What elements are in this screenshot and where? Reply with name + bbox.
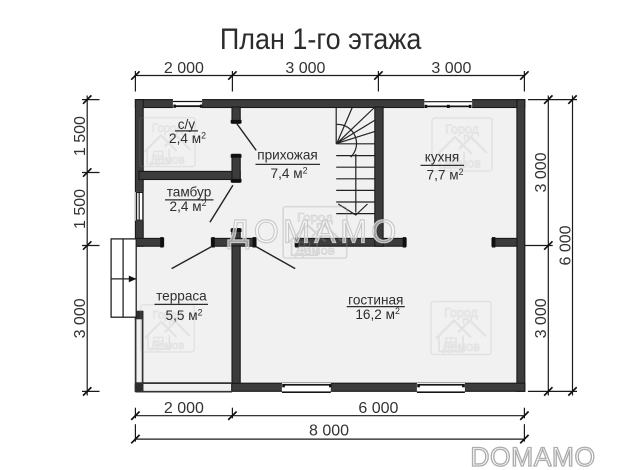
svg-text:3 000: 3 000: [533, 298, 550, 338]
svg-text:тамбур: тамбур: [167, 184, 212, 199]
svg-text:2,4 м2: 2,4 м2: [169, 130, 206, 146]
svg-text:прихожая: прихожая: [257, 148, 318, 163]
svg-text:терраса: терраса: [156, 288, 207, 303]
svg-text:2 000: 2 000: [164, 400, 204, 417]
svg-text:с/у: с/у: [178, 117, 196, 132]
svg-text:5,5 м2: 5,5 м2: [166, 307, 203, 323]
svg-text:1 500: 1 500: [72, 116, 89, 156]
svg-text:ДОМАМО: ДОМАМО: [228, 213, 401, 249]
svg-text:8 000: 8 000: [309, 422, 349, 439]
svg-text:2 000: 2 000: [164, 60, 204, 77]
svg-text:3 000: 3 000: [533, 152, 550, 192]
svg-text:6 000: 6 000: [557, 225, 574, 265]
svg-text:2,4 м2: 2,4 м2: [170, 198, 207, 214]
svg-text:7,4 м2: 7,4 м2: [271, 165, 308, 181]
svg-text:План 1-го этажа: План 1-го этажа: [220, 23, 422, 56]
svg-text:3 000: 3 000: [285, 60, 325, 77]
svg-text:6 000: 6 000: [358, 400, 398, 417]
svg-text:DOMAMO: DOMAMO: [470, 442, 595, 470]
svg-text:3 000: 3 000: [72, 298, 89, 338]
svg-text:кухня: кухня: [425, 150, 460, 165]
svg-text:16,2 м2: 16,2 м2: [355, 306, 400, 322]
svg-text:1 500: 1 500: [72, 189, 89, 229]
svg-text:гостиная: гостиная: [348, 292, 403, 307]
svg-text:3 000: 3 000: [431, 60, 471, 77]
svg-text:7,7 м2: 7,7 м2: [427, 167, 464, 183]
